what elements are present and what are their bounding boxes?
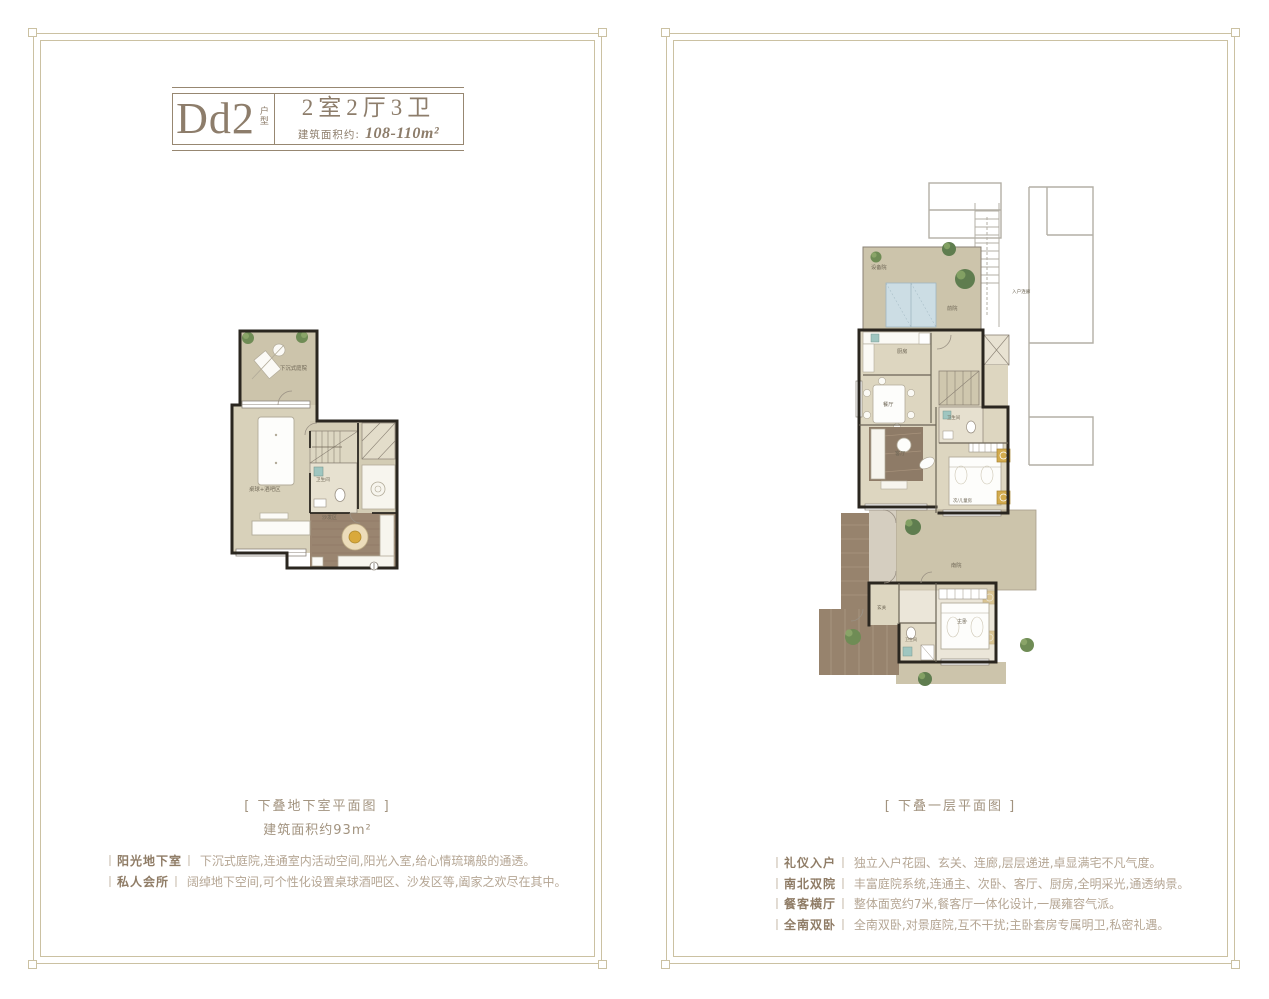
bullet-label: 全南双卧 (784, 918, 836, 932)
room-label-living: 客厅 (895, 449, 905, 457)
unit-code: Dd2 (176, 97, 255, 141)
unit-code-cell: Dd2 户型 (173, 94, 275, 144)
room-label-south-yard: 南院 (951, 561, 962, 569)
room-label-master-bedroom: 主卧 (957, 617, 967, 625)
stairs (939, 371, 979, 405)
feature-bullet: 丨全南双卧丨 全南双卧,对景庭院,互不干扰;主卧套房专属明卫,私密礼遇。 (770, 915, 1218, 936)
bullet-label: 餐客横厅 (784, 897, 836, 911)
feature-bullet: 丨礼仪入户丨 独立入户花园、玄关、连廊,层层递进,卓显满宅不凡气度。 (770, 853, 1218, 874)
bullet-text: 下沉式庭院,连通室内活动空间,阳光入室,给心情琉璃般的通透。 (200, 854, 535, 868)
foyer-floor (869, 583, 899, 625)
equipment-units (886, 283, 936, 327)
bullet-label: 礼仪入户 (784, 856, 836, 870)
room-label-equipment-yard: 设备院 (871, 263, 887, 271)
unit-area-label: 建筑面积约: (298, 129, 360, 141)
bullet-label: 阳光地下室 (117, 854, 182, 868)
corner-ornament (598, 960, 607, 969)
room-label-foyer: 玄关 (877, 604, 887, 611)
room-label-billiard-bar: 桌球+酒吧区 (249, 485, 281, 493)
corner-ornament (661, 28, 670, 37)
panel-basement: Dd2 户型 2室2厅3卫 建筑面积约: 108-110m² (25, 25, 610, 972)
feature-bullet: 丨私人会所丨 阔绰地下空间,可个性化设置桌球酒吧区、沙发区等,阖家之欢尽在其中。 (103, 872, 575, 893)
room-label-sofa-area: 沙发区 (322, 514, 337, 521)
corner-ornament (28, 960, 37, 969)
bathroom-fixtures (939, 407, 983, 443)
first-floor-plan: 设备院 前院 入户连廊 厨房 餐厅 客厅 卫生间 次/儿童房 南院 玄关 卫生间… (801, 175, 1101, 697)
corner-ornament (1231, 960, 1240, 969)
corner-ornament (661, 960, 670, 969)
billiard-table (258, 417, 294, 485)
bullet-text: 阔绰地下空间,可个性化设置桌球酒吧区、沙发区等,阖家之欢尽在其中。 (187, 875, 567, 889)
basement-floor-plan: 下沉式庭院 桌球+酒吧区 卫生间 沙发区 (222, 323, 412, 573)
closet-hatched (362, 423, 395, 459)
bathroom-fixtures (310, 463, 357, 513)
unit-area-value: 108-110m² (365, 125, 439, 142)
bullet-text: 丰富庭院系统,连通主、次卧、客厅、厨房,全明采光,通透纳景。 (854, 877, 1189, 891)
room-label-entry-corridor: 入户连廊 (1012, 288, 1031, 295)
bar-shelf (260, 513, 288, 519)
room-label-kitchen: 厨房 (897, 347, 907, 355)
unit-layout: 2室2厅3卫 (302, 95, 436, 120)
feature-bullet: 丨南北双院丨 丰富庭院系统,连通主、次卧、客厅、厨房,全明采光,通透纳景。 (770, 874, 1218, 895)
room-label-dining: 餐厅 (883, 400, 893, 408)
unit-spec-cell: 2室2厅3卫 建筑面积约: 108-110m² (275, 94, 463, 144)
corner-ornament (598, 28, 607, 37)
feature-bullet: 丨餐客横厅丨 整体面宽约7米,餐客厅一体化设计,一展雍容气派。 (770, 894, 1218, 915)
plan-caption: [ 下叠一层平面图 ] (658, 795, 1243, 814)
laundry-area (362, 465, 395, 509)
panel-first-floor: 设备院 前院 入户连廊 厨房 餐厅 客厅 卫生间 次/儿童房 南院 玄关 卫生间… (658, 25, 1243, 972)
plan-caption-area: 建筑面积约93m² (25, 819, 610, 838)
corner-ornament (1231, 28, 1240, 37)
room-label-bathroom: 卫生间 (316, 476, 330, 483)
bullet-label: 南北双院 (784, 877, 836, 891)
room-label-master-bath: 卫生间 (905, 636, 917, 642)
stairs (310, 431, 358, 463)
bullet-text: 整体面宽约7米,餐客厅一体化设计,一展雍容气派。 (854, 897, 1121, 911)
plan-caption: [ 下叠地下室平面图 ] (25, 795, 610, 814)
feature-bullets: 丨阳光地下室丨 下沉式庭院,连通室内活动空间,阳光入室,给心情琉璃般的通透。 丨… (103, 851, 575, 892)
unit-area: 建筑面积约: 108-110m² (298, 123, 439, 143)
vent-shaft (984, 335, 1009, 365)
bullet-text: 独立入户花园、玄关、连廊,层层递进,卓显满宅不凡气度。 (854, 856, 1162, 870)
room-label-bathroom: 卫生间 (947, 414, 960, 421)
feature-bullet: 丨阳光地下室丨 下沉式庭院,连通室内活动空间,阳光入室,给心情琉璃般的通透。 (103, 851, 575, 872)
room-label-front-yard: 前院 (947, 304, 958, 312)
corner-ornament (28, 28, 37, 37)
bar-counter (252, 521, 310, 535)
unit-title-block: Dd2 户型 2室2厅3卫 建筑面积约: 108-110m² (172, 87, 464, 151)
bullet-text: 全南双卧,对景庭院,互不干扰;主卧套房专属明卫,私密礼遇。 (854, 918, 1170, 932)
bullet-label: 私人会所 (117, 875, 169, 889)
side-terrace (869, 510, 896, 583)
room-label-kids-room: 次/儿童房 (953, 497, 973, 504)
feature-bullets: 丨礼仪入户丨 独立入户花园、玄关、连廊,层层递进,卓显满宅不凡气度。 丨南北双院… (770, 853, 1218, 935)
room-label-sunken-courtyard: 下沉式庭院 (280, 364, 308, 372)
unit-code-tag: 户型 (257, 98, 270, 126)
compass-icon (370, 562, 378, 570)
